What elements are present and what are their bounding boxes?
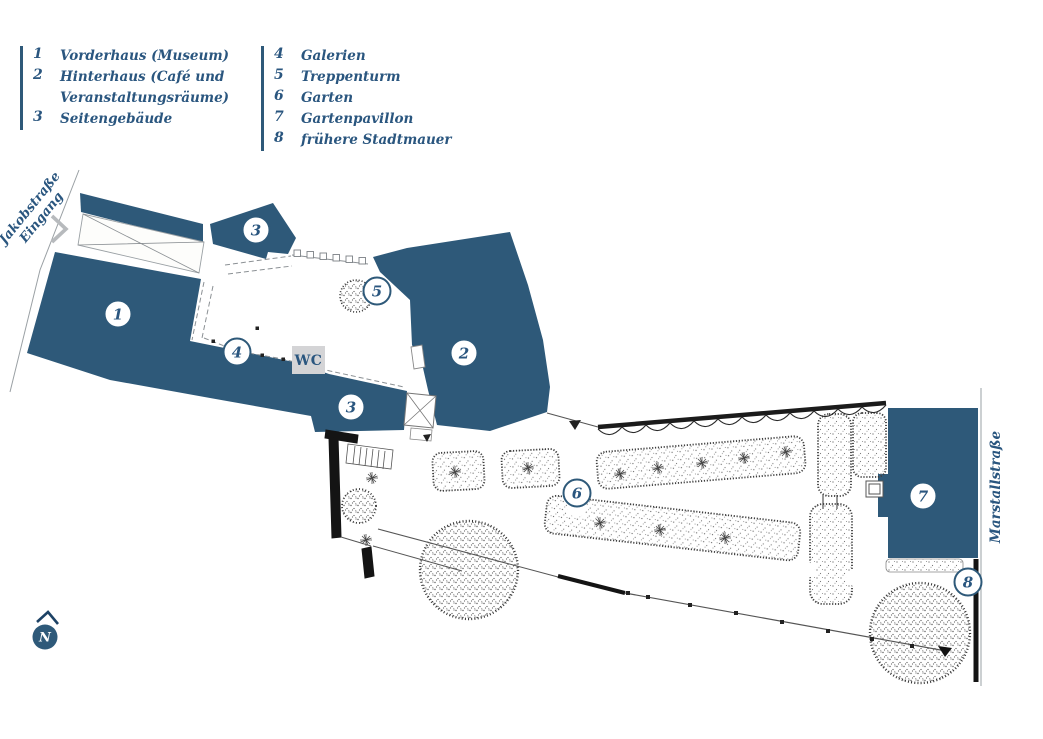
plan-marker-8: 8 — [955, 569, 982, 596]
marker-number: 8 — [963, 574, 974, 592]
plan-marker-3: 3 — [243, 217, 270, 244]
marker-number: 1 — [113, 306, 123, 324]
marker-number: 3 — [346, 399, 356, 417]
street-name-marstallstrasse: Marstallstraße — [988, 430, 1004, 544]
garden-bed — [853, 413, 886, 477]
north-label: N — [38, 631, 52, 646]
plan-marker-1: 1 — [105, 301, 132, 328]
wc-label: WC — [294, 353, 323, 369]
marker-number: 5 — [372, 283, 382, 301]
plan-marker-4: 4 — [224, 339, 251, 366]
pavilion-terrace — [886, 559, 963, 572]
garden-structure — [866, 481, 883, 497]
plan-marker-7: 7 — [910, 483, 937, 510]
north-indicator: N — [33, 612, 59, 650]
jakobstrasse-label: Jakobstraße Eingang — [0, 169, 75, 259]
north-arrow-icon — [37, 612, 58, 624]
door-plan — [411, 345, 425, 369]
plan-marker-3: 3 — [338, 394, 365, 421]
garden-stairs — [346, 444, 393, 469]
site-plan-drawing: Jakobstraße Eingang Marstallstraße — [0, 0, 1043, 739]
small-tree — [342, 489, 376, 523]
garden — [325, 403, 976, 683]
entrance-arrow-icon — [52, 216, 66, 242]
garden-bed — [810, 504, 852, 604]
marker-number: 3 — [251, 222, 261, 240]
large-tree — [870, 583, 970, 683]
marker-number: 4 — [232, 344, 242, 362]
plan-marker-6: 6 — [564, 480, 591, 507]
marker-number: 6 — [572, 485, 583, 503]
plan-marker-5: 5 — [364, 278, 391, 305]
marker-number: 7 — [918, 488, 929, 506]
garden-bed — [501, 449, 560, 489]
plan-marker-2: 2 — [451, 340, 478, 367]
large-tree — [420, 521, 518, 619]
site-plan-page: 1Vorderhaus (Museum)2Hinterhaus (Café un… — [0, 0, 1043, 739]
garden-bed — [818, 414, 851, 496]
wc-box: WC — [292, 346, 325, 374]
stairwell-square — [404, 393, 436, 442]
marstallstrasse-street: Marstallstraße — [981, 388, 1004, 686]
marker-number: 2 — [458, 345, 469, 363]
